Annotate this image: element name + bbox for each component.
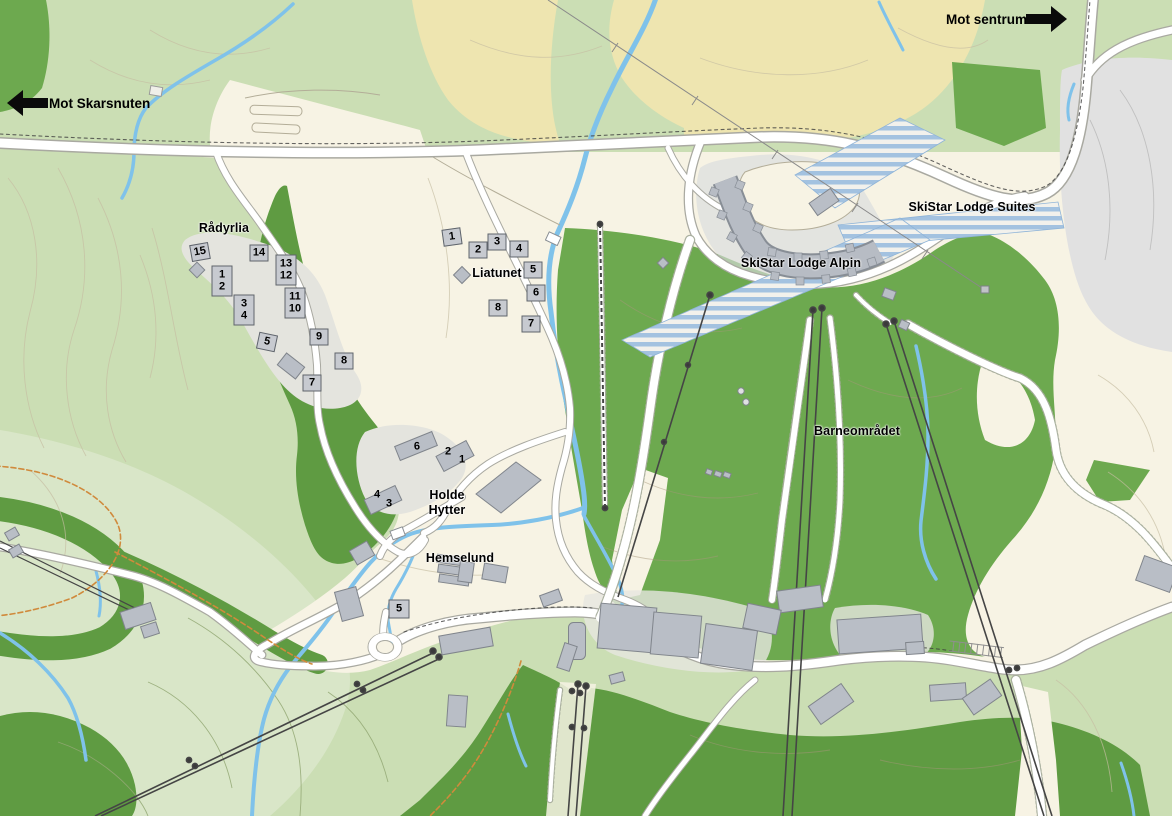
cabin-number: 12 [280,271,292,282]
area-label-skistar-lodge-alpin: SkiStar Lodge Alpin [741,256,861,270]
cabin-marker-radyrlia-3-4: 3 4 [234,295,255,326]
cabin-marker-radyrlia-13-12: 13 12 [276,255,297,286]
label-overlay: Mot Skarsnuten Mot sentrum Rådyrlia Liat… [0,0,1172,816]
cabin-number: 2 [219,282,225,293]
cabin-marker-liatunet-3: 3 [488,234,507,251]
area-label-holde-hytter: Holde Hytter [429,488,466,518]
cabin-marker-radyrlia-1-2: 1 2 [212,266,233,297]
cabin-marker-liatunet-1: 1 [441,227,462,246]
cabin-marker-radyrlia-11-10: 11 10 [285,288,306,319]
cabin-marker-radyrlia-5: 5 [256,332,278,353]
cabin-marker-radyrlia-14: 14 [250,245,269,262]
area-label-radyrlia: Rådyrlia [199,221,249,235]
area-label-liatunet: Liatunet [472,266,521,280]
cabin-number: 10 [289,304,301,315]
area-label-skistar-lodge-suites: SkiStar Lodge Suites [908,200,1035,214]
cabin-marker-liatunet-5: 5 [524,262,543,279]
direction-sign-sentrum: Mot sentrum [946,12,1027,27]
cabin-marker-radyrlia-9: 9 [310,329,329,346]
cabin-number: 13 [280,259,292,270]
cabin-marker-holde-1: 1 [453,452,472,469]
area-label-hemselund: Hemselund [426,551,494,565]
cabin-marker-radyrlia-15: 15 [189,242,211,262]
cabin-marker-liatunet-8: 8 [489,300,508,317]
left-arrow-icon [7,89,48,117]
direction-sign-skarsnuten: Mot Skarsnuten [49,96,150,111]
cabin-marker-liatunet-4: 4 [510,241,529,258]
cabin-number: 1 [219,270,225,281]
area-label-barneomradet: Barneområdet [814,424,900,438]
cabin-marker-hemselund-5: 5 [389,600,410,619]
map-canvas: Mot Skarsnuten Mot sentrum Rådyrlia Liat… [0,0,1172,816]
holde-hytter-line2: Hytter [429,503,466,518]
cabin-marker-radyrlia-7: 7 [303,375,322,392]
cabin-marker-holde-6: 6 [407,438,427,456]
cabin-marker-liatunet-2: 2 [469,242,488,259]
holde-hytter-line1: Holde [429,488,466,503]
cabin-marker-liatunet-7: 7 [522,316,541,333]
cabin-number: 11 [289,292,301,303]
cabin-marker-holde-3: 3 [380,496,399,513]
cabin-marker-radyrlia-8: 8 [335,353,354,370]
cabin-number: 3 [241,299,247,310]
cabin-number: 4 [241,311,247,322]
right-arrow-icon [1026,5,1067,33]
cabin-marker-liatunet-6: 6 [527,285,546,302]
